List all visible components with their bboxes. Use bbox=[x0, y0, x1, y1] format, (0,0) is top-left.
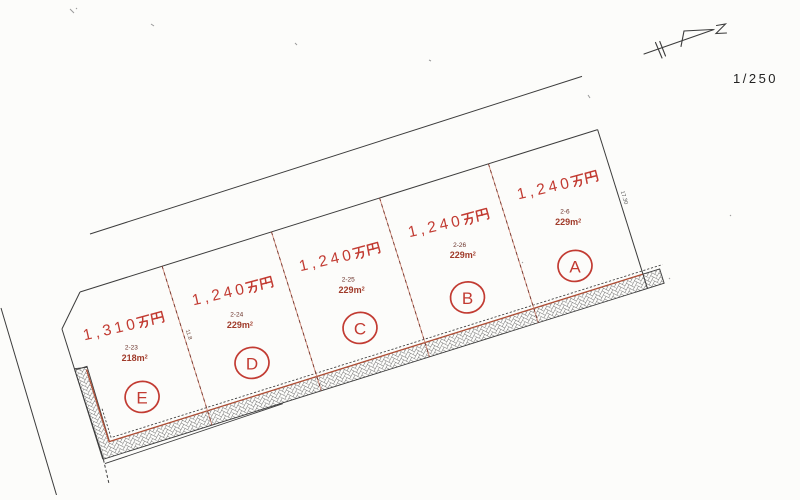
svg-text:1,240: 1,240 bbox=[298, 246, 357, 275]
svg-text:E: E bbox=[136, 388, 147, 407]
svg-text:2-26: 2-26 bbox=[453, 242, 466, 249]
svg-text:229m2: 229m2 bbox=[555, 217, 581, 227]
svg-text:B: B bbox=[462, 289, 473, 308]
svg-text:1,240: 1,240 bbox=[515, 174, 574, 203]
svg-text:2-25: 2-25 bbox=[342, 277, 355, 284]
svg-text:229m2: 229m2 bbox=[339, 285, 365, 295]
svg-text:C: C bbox=[354, 319, 366, 338]
svg-text:2-23: 2-23 bbox=[125, 345, 138, 352]
svg-text:1,240: 1,240 bbox=[191, 280, 250, 309]
svg-text:2-6: 2-6 bbox=[560, 209, 570, 216]
svg-text:D: D bbox=[246, 354, 258, 373]
svg-text:1,310: 1,310 bbox=[82, 315, 141, 344]
svg-text:229m2: 229m2 bbox=[227, 320, 253, 330]
svg-text:1/250: 1/250 bbox=[733, 71, 778, 86]
svg-text:A: A bbox=[569, 257, 581, 276]
svg-text:1,240: 1,240 bbox=[406, 212, 465, 241]
svg-text:229m2: 229m2 bbox=[450, 250, 476, 260]
svg-text:2-24: 2-24 bbox=[230, 312, 243, 319]
svg-text:218m2: 218m2 bbox=[122, 353, 148, 363]
